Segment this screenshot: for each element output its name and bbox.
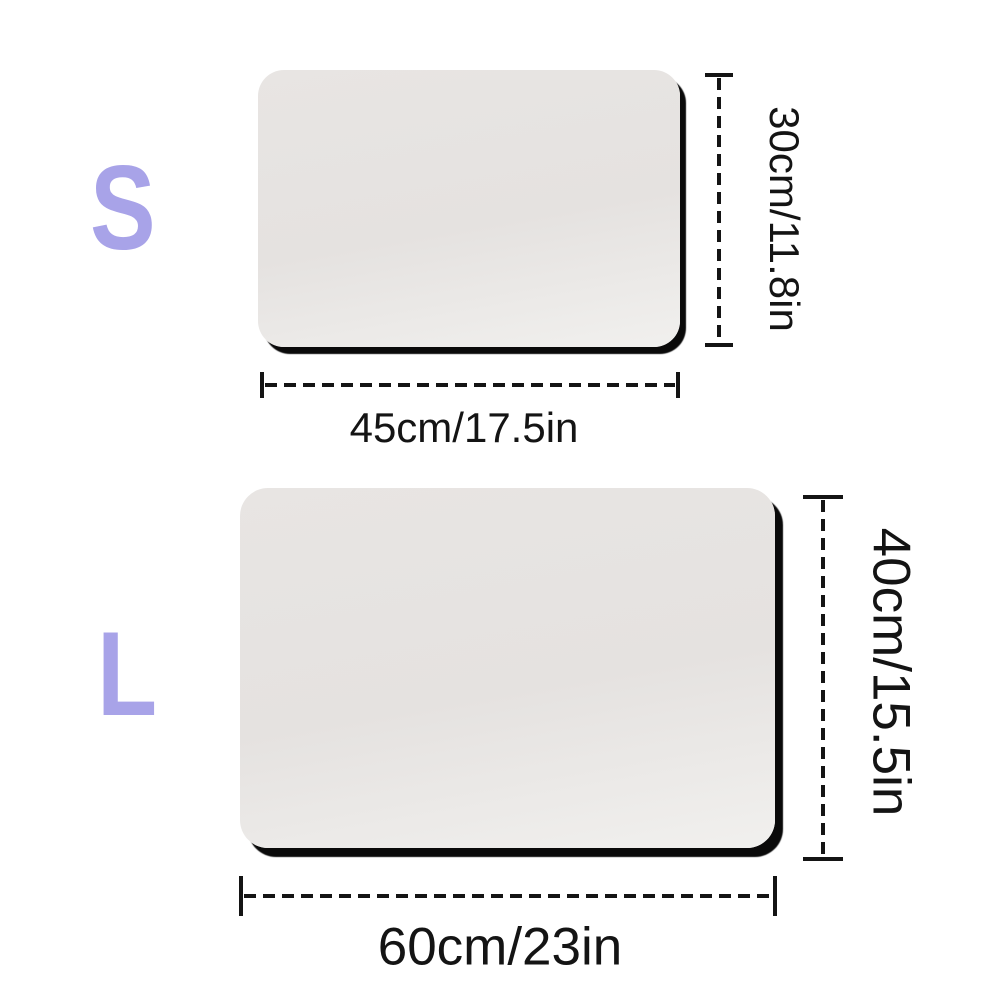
height-dimension-label-large: 40cm/15.5in <box>861 528 922 817</box>
dimension-endcap <box>803 857 843 861</box>
size-label-small: S <box>90 148 156 268</box>
dimension-endcap <box>676 372 680 398</box>
dimension-endcap <box>705 343 733 347</box>
dimension-endcap <box>705 73 733 77</box>
dimension-endcap <box>773 876 777 916</box>
dimension-endcap <box>239 876 243 916</box>
height-dimension-line-small <box>705 73 733 347</box>
dashed-line <box>244 894 772 898</box>
dashed-line <box>821 500 825 856</box>
dimension-endcap <box>803 495 843 499</box>
height-dimension-line-large <box>803 495 843 861</box>
dashed-line <box>717 78 721 342</box>
product-mat-small <box>258 70 680 347</box>
product-mat-large <box>240 488 775 848</box>
size-chart-diagram: S 30cm/11.8in 45cm/17.5in L 40cm/15.5in … <box>0 0 1000 1000</box>
width-dimension-line-large <box>239 876 777 916</box>
width-dimension-label-large: 60cm/23in <box>378 917 623 978</box>
height-dimension-label-small: 30cm/11.8in <box>760 106 808 332</box>
dashed-line <box>265 383 675 387</box>
width-dimension-label-small: 45cm/17.5in <box>350 404 579 452</box>
size-label-large: L <box>97 614 157 734</box>
width-dimension-line-small <box>260 372 680 398</box>
dimension-endcap <box>260 372 264 398</box>
